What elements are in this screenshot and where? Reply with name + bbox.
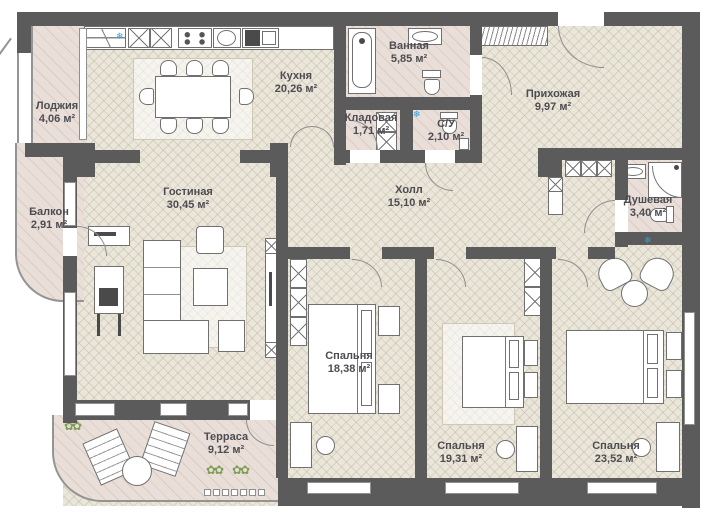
room-label-shower: Душевая3,40 м² xyxy=(624,194,673,220)
armchair xyxy=(196,226,224,254)
nightstand xyxy=(524,372,538,398)
door-opening xyxy=(470,55,482,95)
ac-vent-icon: ❄ xyxy=(413,110,421,119)
pillow xyxy=(509,340,519,368)
pillow xyxy=(361,310,372,354)
room-name: Спальня xyxy=(592,440,640,453)
wall-segment xyxy=(276,177,288,478)
terrace-table xyxy=(122,456,152,486)
room-area: 1,71 м² xyxy=(345,125,398,138)
bedroom1-wardrobe-icon xyxy=(290,317,307,346)
balustrade-post xyxy=(258,489,265,496)
window xyxy=(307,482,371,494)
chair xyxy=(239,88,254,105)
chair xyxy=(212,118,229,134)
room-label-storage: Кладовая1,71 м² xyxy=(345,112,398,138)
room-label-bathroom: Ванная5,85 м² xyxy=(389,40,429,66)
room-name: Терраса xyxy=(204,431,248,444)
room-label-hall: Холл15,10 м² xyxy=(388,184,430,210)
hall-wardrobe-icon xyxy=(597,160,612,177)
door-opening xyxy=(250,400,276,420)
hall-cabinet-icon xyxy=(548,177,563,192)
door-opening xyxy=(350,150,380,163)
wall-segment xyxy=(415,259,427,478)
window xyxy=(160,403,187,416)
wall-segment xyxy=(334,97,482,110)
ac-vent-icon: ❄ xyxy=(644,236,652,245)
desk xyxy=(656,422,680,472)
room-name: С/У xyxy=(428,118,464,131)
window xyxy=(79,28,87,140)
desk xyxy=(516,426,538,472)
stove-icon xyxy=(178,28,212,48)
wall-segment xyxy=(466,247,556,259)
hall-wardrobe-icon xyxy=(581,160,597,177)
sofa-chaise xyxy=(143,320,209,354)
wall-segment xyxy=(63,143,95,177)
ottoman xyxy=(218,320,245,352)
nightstand xyxy=(378,384,400,414)
window xyxy=(64,292,76,376)
chair xyxy=(160,60,177,76)
chair xyxy=(186,60,203,76)
room-area: 30,45 м² xyxy=(163,199,213,212)
balustrade-post xyxy=(204,489,211,496)
wall-segment xyxy=(682,12,700,508)
pillow xyxy=(647,334,658,364)
room-label-loggia: Лоджия4,06 м² xyxy=(36,100,78,126)
room-name: Спальня xyxy=(437,440,485,453)
room-area: 23,52 м² xyxy=(592,453,640,466)
room-area: 4,06 м² xyxy=(36,113,78,126)
window xyxy=(75,403,115,416)
wall-segment xyxy=(538,148,562,177)
wall-segment xyxy=(270,143,288,177)
balustrade-post xyxy=(222,489,229,496)
desk-chair xyxy=(316,436,335,455)
room-area: 18,38 м² xyxy=(325,363,373,376)
balustrade-post xyxy=(249,489,256,496)
toilet-tank xyxy=(422,70,441,78)
room-area: 19,31 м² xyxy=(437,453,485,466)
room-area: 20,26 м² xyxy=(275,83,317,96)
wall-segment xyxy=(334,26,346,165)
nightstand xyxy=(666,332,682,360)
room-name: Спальня xyxy=(325,350,373,363)
sink-basin-icon xyxy=(262,31,276,45)
wall-segment xyxy=(95,150,140,163)
wall-segment xyxy=(276,247,350,259)
room-name: Лоджия xyxy=(36,100,78,113)
pillow xyxy=(647,368,658,398)
side-table xyxy=(621,280,648,307)
coat-rack-icon xyxy=(474,26,548,46)
wall-segment xyxy=(400,110,413,153)
toilet-bowl xyxy=(424,79,440,95)
round-hob-icon xyxy=(217,30,236,46)
cabinet-icon xyxy=(128,28,150,48)
wall-segment xyxy=(540,259,552,478)
room-label-bedroom1: Спальня18,38 м² xyxy=(325,350,373,376)
nightstand xyxy=(666,370,682,398)
room-label-kitchen: Кухня20,26 м² xyxy=(275,70,317,96)
shower-head-icon xyxy=(674,165,679,170)
room-area: 3,40 м² xyxy=(624,207,673,220)
room-area: 15,10 м² xyxy=(388,197,430,210)
room-label-wc: С/У2,10 м² xyxy=(428,118,464,144)
hall-wardrobe-icon xyxy=(565,160,581,177)
loggia-glazing-line xyxy=(17,53,19,143)
floor-plan: ✿✿ ✿✿ ✿✿ xyxy=(0,0,716,520)
window xyxy=(587,482,657,494)
desk-chair xyxy=(496,440,515,459)
room-area: 5,85 м² xyxy=(389,53,429,66)
dining-table xyxy=(155,76,231,118)
window xyxy=(445,482,519,494)
chair xyxy=(186,118,203,134)
room-area: 9,97 м² xyxy=(526,101,580,114)
room-name: Балкон xyxy=(29,206,69,219)
window xyxy=(684,312,695,425)
nightstand xyxy=(378,306,400,336)
door-opening xyxy=(425,150,455,163)
bed-blanket-line xyxy=(505,337,506,407)
entrance-door-opening xyxy=(558,12,604,26)
room-area: 2,10 м² xyxy=(428,131,464,144)
room-name: Ванная xyxy=(389,40,429,53)
room-label-entry: Прихожая9,97 м² xyxy=(526,88,580,114)
ac-vent-icon: ❄ xyxy=(116,32,124,41)
room-label-living: Гостиная30,45 м² xyxy=(163,186,213,212)
room-label-terrace: Терраса9,12 м² xyxy=(204,431,248,457)
plant-icon: ✿✿ xyxy=(232,464,248,476)
door-opening xyxy=(63,228,77,256)
nightstand xyxy=(524,340,538,366)
wall-segment xyxy=(615,232,700,245)
room-area: 9,12 м² xyxy=(204,444,248,457)
bed-blanket-line xyxy=(643,331,644,403)
tv-icon xyxy=(269,272,272,306)
room-label-bedroom3: Спальня23,52 м² xyxy=(592,440,640,466)
balustrade-post xyxy=(213,489,220,496)
corner-glazing-line xyxy=(0,38,12,59)
room-name: Кладовая xyxy=(345,112,398,125)
bathtub-drain-icon xyxy=(359,38,365,44)
exercise-machine-leg xyxy=(118,314,121,336)
exercise-machine-seat xyxy=(99,288,118,306)
wall-segment xyxy=(588,247,615,259)
chair xyxy=(160,118,177,134)
room-name: Прихожая xyxy=(526,88,580,101)
room-label-balcony: Балкон2,91 м² xyxy=(29,206,69,232)
wall-segment xyxy=(240,150,272,163)
room-name: Гостиная xyxy=(163,186,213,199)
sink-dark-icon xyxy=(245,30,260,46)
coffee-table xyxy=(193,268,228,306)
desk xyxy=(290,422,312,468)
wall-segment xyxy=(382,247,434,259)
chair xyxy=(139,88,154,105)
room-area: 2,91 м² xyxy=(29,219,69,232)
bedroom1-wardrobe-icon xyxy=(290,288,307,317)
wall-segment xyxy=(17,12,31,53)
room-name: Кухня xyxy=(275,70,317,83)
room-name: Душевая xyxy=(624,194,673,207)
bedroom1-wardrobe-icon xyxy=(290,259,307,288)
pillow xyxy=(509,372,519,400)
cabinet-icon xyxy=(150,28,172,48)
window xyxy=(228,403,248,416)
exercise-machine-leg xyxy=(97,314,100,336)
balustrade-post xyxy=(240,489,247,496)
room-name: Холл xyxy=(388,184,430,197)
balustrade-post xyxy=(231,489,238,496)
chair xyxy=(212,60,229,76)
plant-icon: ✿✿ xyxy=(206,464,222,476)
room-label-bedroom2: Спальня19,31 м² xyxy=(437,440,485,466)
